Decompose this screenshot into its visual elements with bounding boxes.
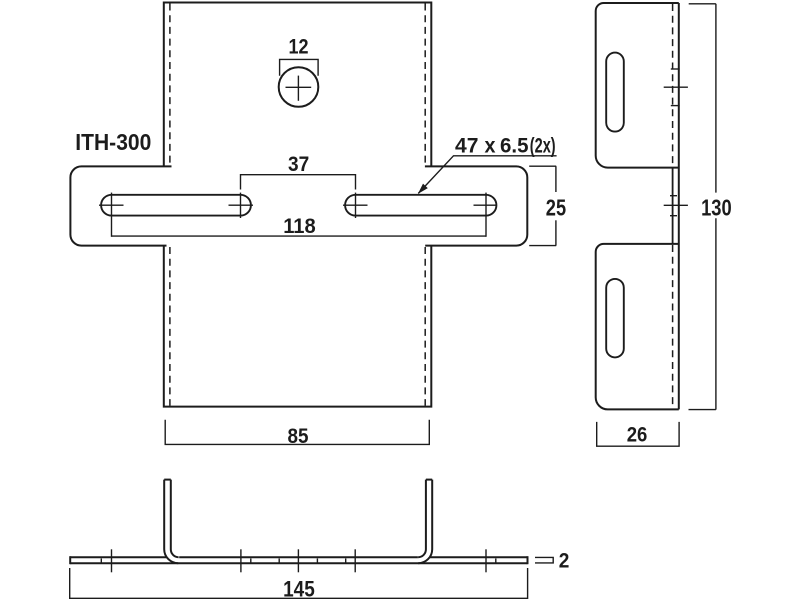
- svg-text:47: 47: [455, 135, 478, 158]
- svg-text:37: 37: [288, 152, 309, 176]
- svg-text:130: 130: [701, 194, 732, 220]
- svg-text:6.5: 6.5: [500, 135, 529, 158]
- svg-text:(2x): (2x): [530, 135, 556, 158]
- svg-text:ITH-300: ITH-300: [75, 129, 151, 155]
- svg-text:118: 118: [283, 214, 316, 238]
- svg-text:85: 85: [288, 424, 309, 448]
- svg-text:12: 12: [289, 34, 309, 58]
- svg-text:25: 25: [546, 195, 566, 221]
- svg-text:2: 2: [559, 548, 570, 572]
- svg-text:145: 145: [283, 577, 315, 600]
- svg-text:x: x: [485, 135, 496, 158]
- svg-text:26: 26: [627, 423, 648, 447]
